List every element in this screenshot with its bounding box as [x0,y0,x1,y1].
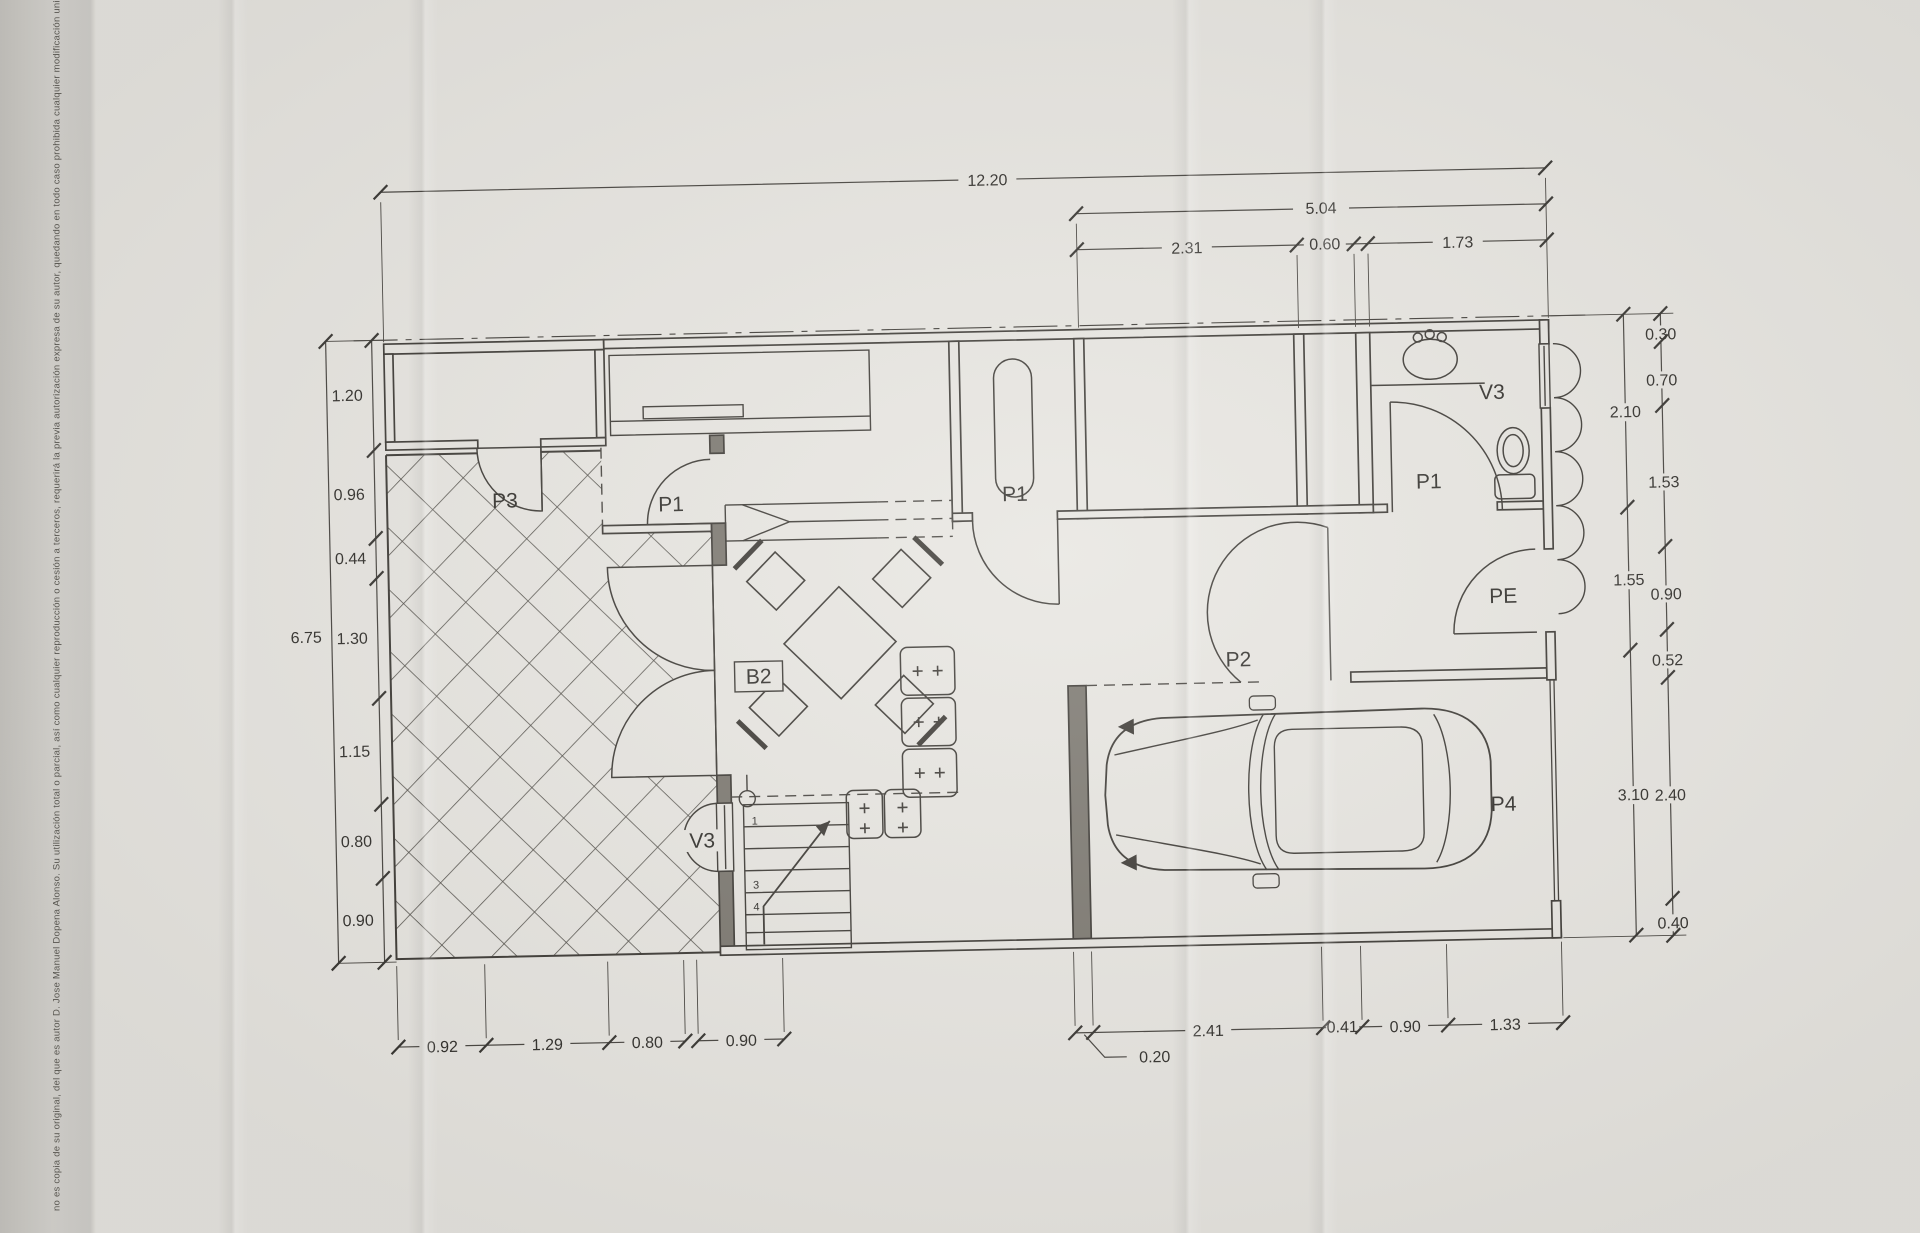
dim-rz-b: 0.60 [1309,236,1341,254]
utility-fixture [993,359,1034,498]
label-window-v3-bath: V3 [1479,381,1505,405]
sink-icon [1370,329,1485,386]
dim-ro6: 2.40 [1655,787,1687,805]
dim-rz-a: 2.31 [1171,240,1203,258]
stair-number-3: 3 [753,879,759,891]
stair-number-1: 1 [752,815,758,827]
dim-g0: 0.20 [1139,1049,1171,1067]
dim-g3: 0.90 [1389,1019,1421,1037]
copyright-sidenote: no es copia de su original, del que es a… [52,21,63,1211]
car-top-view [1103,691,1493,891]
dim-g4: 1.33 [1489,1017,1521,1035]
label-door-pe: PE [1489,585,1517,609]
dim-top-total: 12.20 [967,172,1007,190]
dim-l5: 1.15 [339,744,371,762]
stair-number-4: 4 [753,901,759,913]
kitchen-counter [725,502,878,541]
dim-left-total: 6.75 [291,630,323,648]
label-door-p4: P4 [1490,793,1516,817]
dining-table-set [734,537,946,749]
dim-g1: 2.41 [1193,1023,1225,1041]
dim-right-zone-total: 5.04 [1305,200,1337,218]
label-door-b2: B2 [746,665,772,689]
dim-ro3: 1.53 [1648,474,1680,492]
label-window-v3-stairs: V3 [689,829,715,853]
dim-l1: 1.20 [331,388,363,406]
label-door-p3: P3 [492,489,518,513]
dim-ro5: 0.52 [1652,652,1684,670]
dim-ri3: 3.10 [1618,787,1650,805]
stairs [739,773,852,950]
window-glyphs [707,344,1559,872]
dim-rz-c: 1.73 [1442,234,1474,252]
scanned-paper-sheet: 12.20 5.04 2.31 0.60 1.73 6.75 1.20 0.96… [0,0,1920,1233]
label-door-p1-room: P1 [1002,483,1028,507]
dim-l2: 0.96 [334,487,366,505]
dim-l6: 0.80 [341,834,373,852]
dim-ri1: 2.10 [1610,404,1642,422]
sofa-modules [843,646,958,838]
closet [609,350,871,435]
dim-l7: 0.90 [342,913,374,931]
facade-scallops [1553,343,1586,614]
label-door-p1-bath: P1 [1416,470,1442,494]
label-door-p2: P2 [1225,648,1251,672]
dim-l4: 1.30 [337,631,369,649]
dim-b3: 0.80 [632,1035,664,1053]
dim-b4: 0.90 [726,1033,758,1051]
label-door-p1-vestibule: P1 [658,493,684,517]
dim-ro7: 0.40 [1657,915,1689,933]
dim-g2: 0.41 [1326,1019,1358,1037]
dim-b2: 1.29 [532,1037,564,1055]
dim-ro4: 0.90 [1650,586,1682,604]
dim-b1: 0.92 [427,1039,459,1057]
dim-ro2: 0.70 [1646,372,1678,390]
dim-ri2: 1.55 [1613,572,1645,590]
dim-l3: 0.44 [335,551,367,569]
floor-plan-drawing: 12.20 5.04 2.31 0.60 1.73 6.75 1.20 0.96… [0,0,1920,1233]
dim-ro1: 0.30 [1645,326,1677,344]
